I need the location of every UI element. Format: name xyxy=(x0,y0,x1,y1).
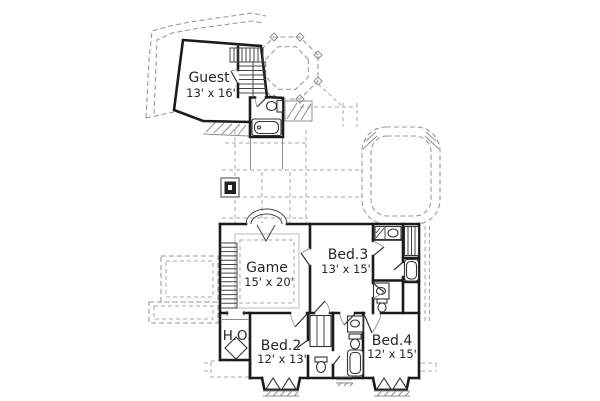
ho-label: H.O. xyxy=(223,328,252,344)
bed4-window-bay xyxy=(373,378,410,396)
floor-plan-svg: Guest 13' x 16' xyxy=(0,0,600,401)
roof-outline-right-edge xyxy=(421,226,436,371)
porch-hatch-below-turret xyxy=(285,101,312,121)
bed3-room-label: Bed.3 xyxy=(328,247,368,263)
roof-outline-below-ho xyxy=(204,361,250,377)
guest-room-dims: 13' x 16' xyxy=(186,86,236,100)
bath-window-sill xyxy=(336,382,353,386)
toilet xyxy=(317,362,326,373)
game-room-dims: 15' x 20' xyxy=(244,275,294,289)
bed3-room-dims: 13' x 15' xyxy=(321,262,371,276)
toilet xyxy=(351,339,360,349)
guest-room-label: Guest xyxy=(188,70,230,86)
toilet xyxy=(378,303,386,312)
bath-sink xyxy=(388,229,398,237)
bed2-window-bay xyxy=(262,378,300,396)
bath-sink xyxy=(351,320,360,327)
roof-outline-right xyxy=(362,127,440,224)
main-floor: Game 15' x 20' Bed.3 13' x 15' Bed.2 12'… xyxy=(220,209,419,396)
guest-suite: Guest 13' x 16' xyxy=(174,40,283,137)
porch-hatch-below-guest xyxy=(203,122,249,136)
chimney xyxy=(221,178,239,197)
bed2-room-dims: 12' x 13' xyxy=(257,352,307,366)
floor-plan: Guest 13' x 16' xyxy=(0,0,600,401)
bath-sink xyxy=(377,288,386,295)
toilet xyxy=(277,101,283,113)
game-room-label: Game xyxy=(246,260,288,276)
bed4-room-dims: 12' x 15' xyxy=(367,347,417,361)
roof-outline-left xyxy=(149,256,218,323)
